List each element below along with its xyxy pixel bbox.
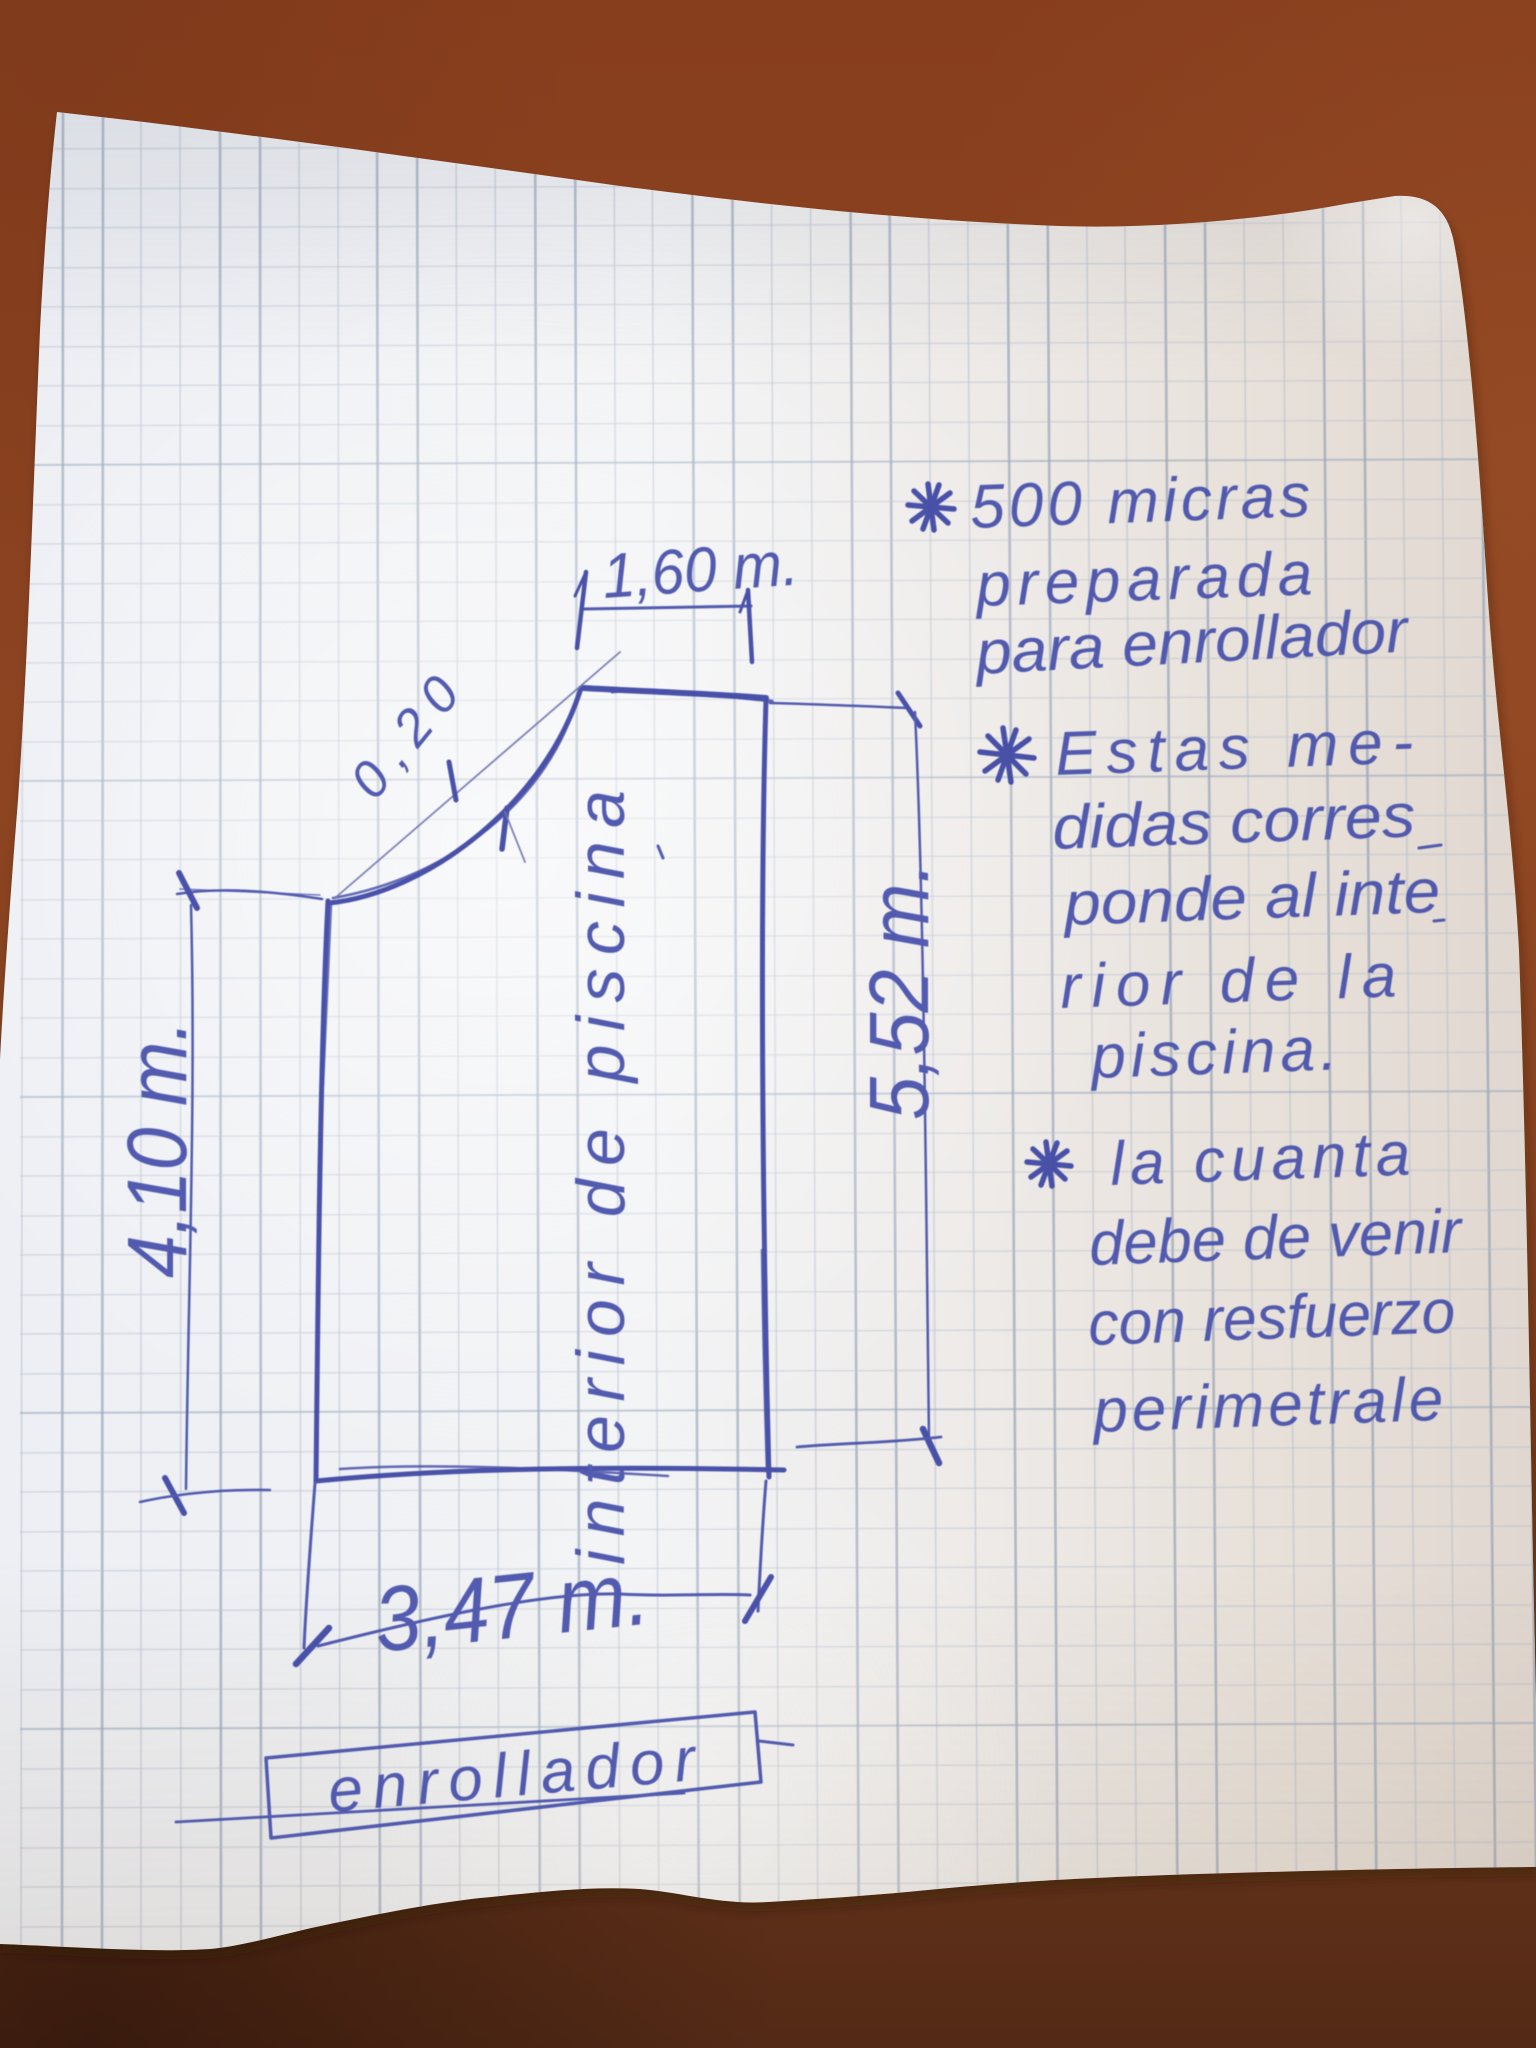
- svg-text:didas corres: didas corres: [1051, 781, 1416, 863]
- svg-text:4,10 m.: 4,10 m.: [110, 1020, 204, 1278]
- svg-text:con resfuerzo: con resfuerzo: [1087, 1277, 1456, 1359]
- svg-text:5,52 m.: 5,52 m.: [852, 862, 946, 1120]
- svg-text:Estas me-: Estas me-: [1054, 708, 1414, 789]
- svg-text:la cuanta: la cuanta: [1109, 1120, 1411, 1199]
- svg-text:ponde al inte: ponde al inte: [1061, 857, 1441, 939]
- svg-text:500 micras: 500 micras: [969, 461, 1311, 542]
- svg-text:1,60 m.: 1,60 m.: [600, 528, 800, 612]
- svg-text:debe de venir: debe de venir: [1088, 1197, 1464, 1279]
